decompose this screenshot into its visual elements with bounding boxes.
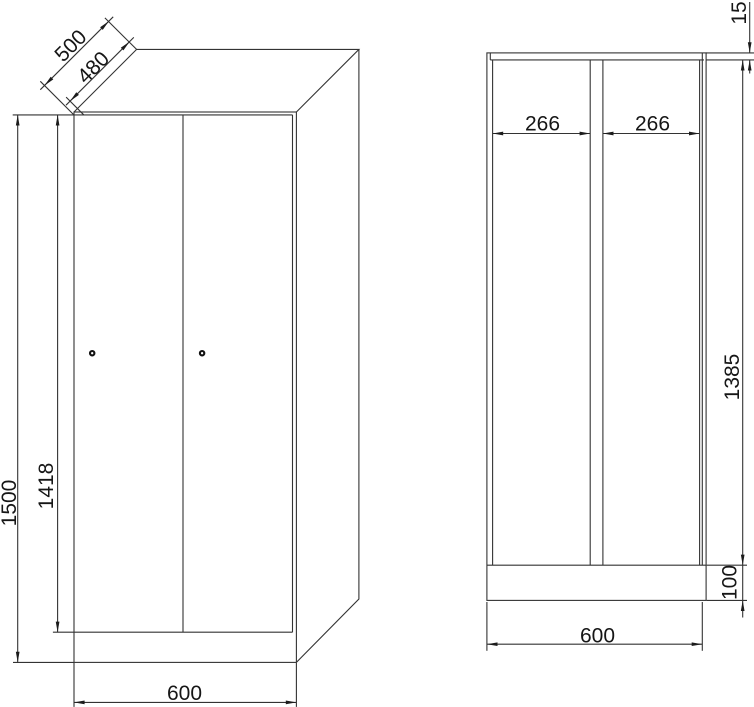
svg-text:266: 266 [525,113,560,136]
svg-text:600: 600 [167,682,202,705]
svg-text:1500: 1500 [0,480,21,527]
svg-text:1418: 1418 [35,463,58,510]
svg-text:15: 15 [728,1,751,24]
svg-text:1385: 1385 [721,354,744,401]
svg-text:100: 100 [718,565,741,600]
svg-text:266: 266 [635,113,670,136]
svg-text:600: 600 [580,625,615,648]
